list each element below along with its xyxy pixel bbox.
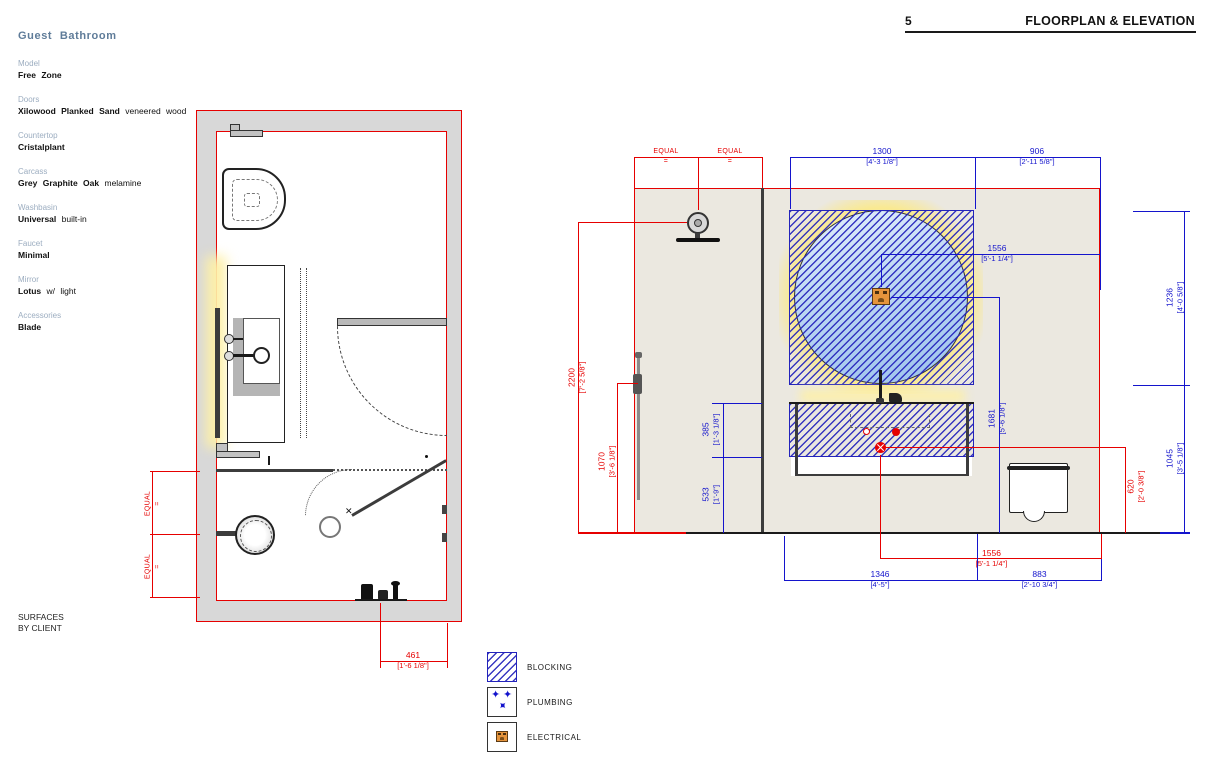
dim-line — [723, 403, 724, 533]
spec-item: Faucet Minimal — [18, 238, 208, 261]
dim-620: 620 [2'-0 3/8"] — [1127, 449, 1146, 525]
dim-1556-top: 1556 [5'-1 1/4"] — [952, 244, 1042, 263]
dim-line — [617, 383, 638, 384]
dim-line — [634, 157, 635, 188]
cabinet-bottom — [795, 474, 969, 476]
plumbing-star-icon: ✦ — [491, 690, 500, 701]
shower-door-handle-icon: ✕ — [345, 507, 354, 516]
dim-line — [784, 536, 785, 580]
vanity-faucet-base — [876, 398, 884, 403]
mirror-plan — [215, 308, 220, 438]
basin-dashed-outline — [850, 414, 930, 428]
dim-line — [1101, 559, 1102, 580]
dim-line — [762, 157, 763, 188]
dim-1070: 1070 [3'-6 1/8"] — [598, 422, 617, 502]
dim-906: 906 [2'-11 5/8"] — [987, 147, 1087, 166]
cabinet-side — [966, 404, 969, 476]
dim-line — [150, 534, 200, 535]
plumbing-point — [863, 428, 870, 435]
toilet-elev — [1009, 463, 1068, 513]
wall-corner-line — [761, 188, 764, 533]
dim-line — [578, 222, 687, 223]
basin-surround — [233, 384, 280, 396]
shower-head-elev — [687, 212, 709, 234]
spec-item: Accessories Blade — [18, 310, 208, 333]
dim-line — [150, 471, 200, 472]
drain-icon — [253, 347, 270, 364]
spec-item: Model Free Zone — [18, 58, 208, 81]
dim-1300: 1300 [4'-3 1/8"] — [832, 147, 932, 166]
shower-plate — [676, 238, 720, 242]
floor-line — [686, 532, 1162, 535]
page-title: FLOORPLAN & ELEVATION — [905, 14, 1195, 28]
toilet-lid — [1007, 466, 1070, 470]
dim-385: 385 [1'-3 1/8"] — [702, 398, 721, 462]
plumbing-point-main — [875, 442, 886, 453]
door-panel-plan — [337, 318, 447, 326]
dim-line — [698, 157, 699, 210]
dim-line — [975, 157, 976, 209]
plumbing-point — [892, 428, 900, 436]
spec-item: Carcass Grey Graphite Oak melamine — [18, 166, 208, 189]
fixture-baseline — [355, 599, 407, 601]
dim-1045: 1045 [3'-5 1/8"] — [1166, 419, 1185, 499]
spec-item: Countertop Cristalplant — [18, 130, 208, 153]
tick-mark — [268, 456, 270, 465]
title-underline — [905, 31, 1196, 33]
spec-list: Guest Bathroom Model Free Zone Doors Xil… — [18, 30, 208, 346]
floor-line — [578, 532, 686, 534]
dim-line — [881, 254, 882, 287]
dim-line — [1100, 157, 1101, 290]
vanity-faucet-lever — [889, 393, 902, 402]
electrical-outlet-icon — [496, 731, 508, 742]
dim-equal-1: EQUAL = — [144, 477, 163, 531]
wall-jet — [442, 505, 447, 514]
spec-item: Mirror Lotus w/ light — [18, 274, 208, 297]
spec-item: Washbasin Universal built-in — [18, 202, 208, 225]
shower-partition — [216, 469, 333, 472]
toilet-plan — [222, 168, 286, 230]
dim-1681: 1681 [5'-6 1/8"] — [988, 377, 1007, 461]
dim-line — [617, 383, 618, 533]
wall-bracket — [216, 451, 260, 458]
floor-ext-line — [1160, 532, 1190, 534]
wall-bracket — [230, 130, 263, 137]
plumbing-star-icon: ✦ — [494, 699, 508, 713]
dim-line — [790, 157, 791, 209]
slider-mount — [635, 352, 642, 358]
dim-line — [1101, 534, 1102, 559]
shower-head-plan — [235, 515, 275, 555]
legend-label: ELECTRICAL — [527, 733, 581, 742]
spec-heading: Guest Bathroom — [18, 30, 208, 42]
legend-label: PLUMBING — [527, 698, 573, 707]
cabinet-side — [795, 404, 798, 476]
legend-label: BLOCKING — [527, 663, 572, 672]
legend-electrical: ELECTRICAL — [487, 722, 581, 752]
dim-line — [1133, 385, 1190, 386]
dim-equal-2: EQUAL = — [144, 540, 163, 594]
dim-1346: 1346 [4'-5"] — [835, 570, 925, 589]
shower-fixture — [361, 584, 373, 600]
faucet-stem — [233, 338, 243, 340]
dim-1236: 1236 [4'-0 5/8"] — [1166, 255, 1185, 341]
dim-line — [1133, 211, 1190, 212]
dim-equal-elev-2: EQUAL = — [705, 147, 755, 166]
electrical-swatch — [487, 722, 517, 752]
drawing-sheet: 5 FLOORPLAN & ELEVATION Guest Bathroom M… — [0, 0, 1214, 775]
dim-line — [977, 534, 978, 580]
dim-533: 533 [1'-9"] — [702, 467, 721, 523]
dim-1556-bottom: 1556 [5'-1 1/4"] — [944, 549, 1039, 568]
legend-blocking: BLOCKING — [487, 652, 572, 682]
electrical-outlet-icon — [872, 288, 890, 305]
door-stop-dot — [425, 455, 428, 458]
shower-fixture — [391, 581, 400, 586]
dim-equal-elev-1: EQUAL = — [641, 147, 691, 166]
dim-461: 461 [1'-6 1/8"] — [373, 651, 453, 670]
dim-line — [891, 297, 999, 298]
blocking-swatch — [487, 652, 517, 682]
surfaces-note: SURFACES BY CLIENT — [18, 612, 64, 634]
floor-drain-icon — [319, 516, 341, 538]
wall-jet — [442, 533, 447, 542]
dim-line — [150, 597, 200, 598]
glass-screen-plan — [300, 268, 307, 438]
faucet-spout — [233, 354, 255, 357]
dim-883: 883 [2'-10 3/4"] — [992, 570, 1087, 589]
plumbing-swatch: ✦ ✦ ✦ — [487, 687, 517, 717]
legend-plumbing: ✦ ✦ ✦ PLUMBING — [487, 687, 573, 717]
dim-2200: 2200 [7'-2 5/8"] — [568, 333, 587, 423]
dim-line — [880, 455, 881, 559]
spec-item: Doors Xilowood Planked Sand veneered woo… — [18, 94, 208, 117]
